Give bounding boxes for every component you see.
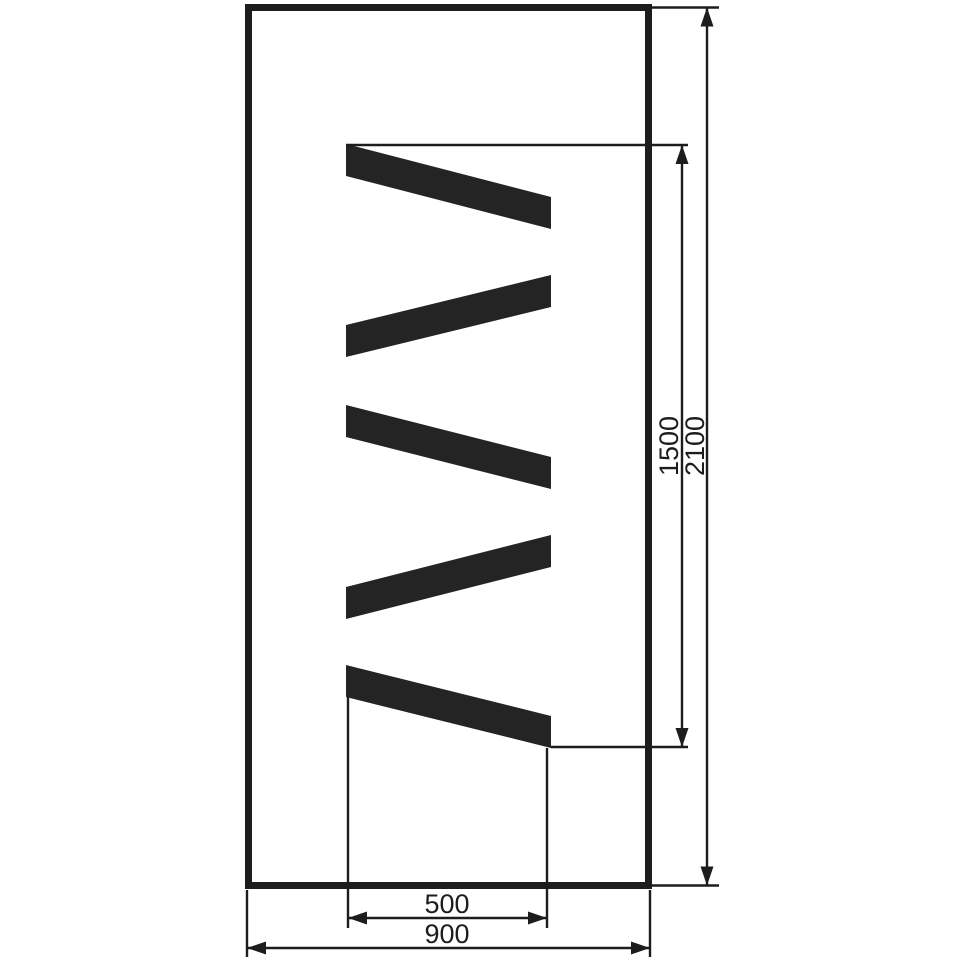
dim-2100-arrow-down-icon: [701, 867, 714, 886]
technical-drawing-page: 1500 2100 500 900: [0, 0, 960, 960]
dim-2100-label: 2100: [680, 416, 710, 476]
dim-900-label: 900: [424, 919, 469, 949]
zigzag-bar-4: [346, 535, 551, 619]
dim-900-arrow-left-icon: [247, 942, 266, 955]
dim-1500-arrow-down-icon: [676, 728, 689, 747]
zigzag-bar-5: [346, 665, 551, 748]
dim-1500-arrow-up-icon: [676, 145, 689, 164]
dim-500-arrow-left-icon: [348, 912, 367, 925]
dim-500-arrow-right-icon: [528, 912, 547, 925]
zigzag-bar-2: [346, 275, 551, 357]
dim-2100-arrow-up-icon: [701, 8, 714, 27]
zigzag-bar-3: [346, 405, 551, 489]
technical-drawing-canvas: 1500 2100 500 900: [0, 0, 960, 960]
dim-900-arrow-right-icon: [631, 942, 650, 955]
zigzag-bar-1: [346, 144, 551, 229]
dim-500-label: 500: [424, 889, 469, 919]
